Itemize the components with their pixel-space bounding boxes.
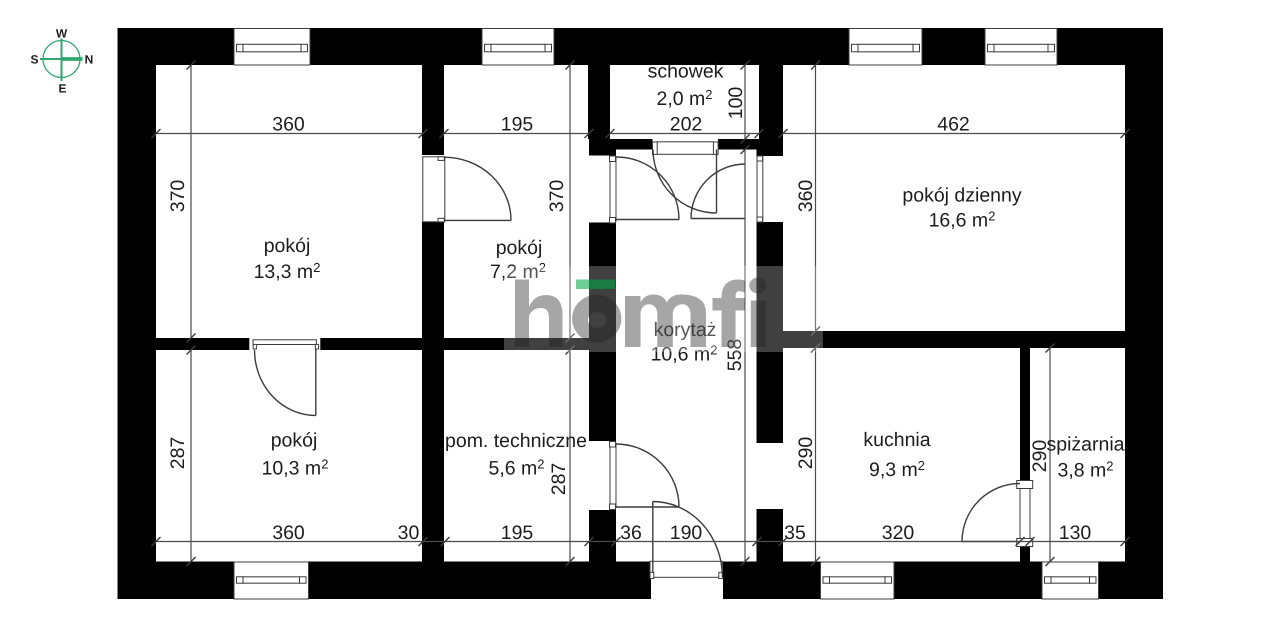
svg-text:N: N xyxy=(85,53,94,67)
svg-text:13,3 m2: 13,3 m2 xyxy=(254,260,321,283)
svg-text:10,3 m2: 10,3 m2 xyxy=(262,457,329,480)
svg-text:370: 370 xyxy=(167,180,189,213)
svg-text:W: W xyxy=(56,27,68,41)
svg-text:202: 202 xyxy=(670,114,703,136)
svg-text:35: 35 xyxy=(784,522,806,544)
svg-text:36: 36 xyxy=(620,522,642,544)
svg-text:schowek: schowek xyxy=(648,61,724,83)
svg-text:360: 360 xyxy=(272,522,305,544)
svg-text:pokój: pokój xyxy=(496,237,543,259)
svg-text:3,8 m2: 3,8 m2 xyxy=(1057,459,1113,482)
svg-text:pokój: pokój xyxy=(264,235,311,257)
svg-text:290: 290 xyxy=(795,437,817,470)
svg-text:5,6 m2: 5,6 m2 xyxy=(488,457,544,480)
svg-text:320: 320 xyxy=(882,522,915,544)
svg-text:287: 287 xyxy=(548,463,570,496)
svg-text:360: 360 xyxy=(795,180,817,213)
svg-text:E: E xyxy=(58,82,66,96)
svg-text:S: S xyxy=(30,53,38,67)
svg-text:30: 30 xyxy=(398,522,420,544)
svg-text:370: 370 xyxy=(546,180,568,213)
svg-text:16,6 m2: 16,6 m2 xyxy=(929,209,996,232)
svg-text:2,0 m2: 2,0 m2 xyxy=(656,87,712,110)
svg-text:100: 100 xyxy=(725,87,747,120)
svg-text:195: 195 xyxy=(501,114,534,136)
svg-text:kuchnia: kuchnia xyxy=(863,429,930,451)
svg-text:287: 287 xyxy=(167,437,189,470)
svg-text:pokój dzienny: pokój dzienny xyxy=(902,185,1021,207)
svg-text:462: 462 xyxy=(937,114,970,136)
svg-text:190: 190 xyxy=(670,522,703,544)
svg-text:360: 360 xyxy=(272,114,305,136)
svg-text:130: 130 xyxy=(1059,522,1092,544)
svg-text:195: 195 xyxy=(501,522,534,544)
svg-text:290: 290 xyxy=(1029,440,1051,473)
svg-text:9,3 m2: 9,3 m2 xyxy=(869,458,925,481)
svg-text:pokój: pokój xyxy=(271,430,318,452)
svg-text:spiżarnia: spiżarnia xyxy=(1046,434,1124,456)
svg-text:pom. techniczne: pom. techniczne xyxy=(445,430,587,452)
